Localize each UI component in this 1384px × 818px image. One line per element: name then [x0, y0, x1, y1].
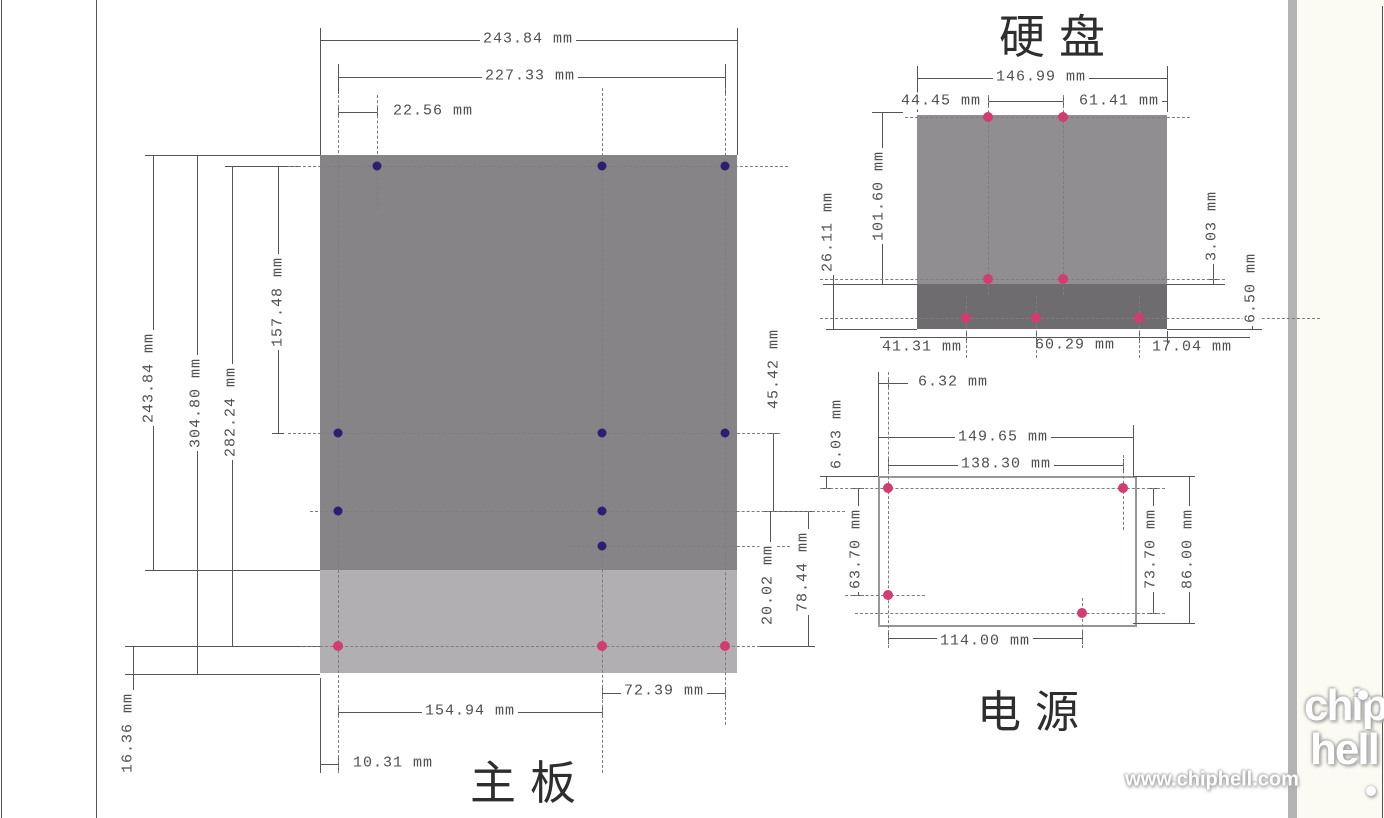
dimension-line [826, 329, 917, 330]
mounting-hole-dot [598, 542, 607, 551]
circuit-dot-icon [1358, 690, 1368, 700]
dim-label-psu-height: 86.00 mm [1180, 506, 1197, 592]
mounting-hole-dot [598, 162, 607, 171]
dim-label-psu-width-outer: 149.65 mm [955, 429, 1051, 446]
dimension-line [1167, 95, 1168, 107]
dim-label-mb-bottom-edge: 16.36 mm [120, 690, 137, 776]
centerline [1063, 95, 1064, 295]
dim-label-psu-right-span: 73.70 mm [1143, 506, 1160, 592]
dimension-line [147, 570, 159, 571]
dim-label-hdd-mid-offset: 3.03 mm [1204, 188, 1221, 264]
dim-label-psu-inset-x: 6.32 mm [915, 374, 991, 391]
dimension-line [737, 28, 738, 155]
centerline [377, 95, 378, 210]
dimension-line [320, 34, 321, 46]
dimension-line [191, 674, 203, 675]
mounting-hole-dot [720, 641, 730, 651]
dimension-line [826, 476, 827, 488]
dimension-line [1207, 284, 1219, 285]
dim-label-hdd-bottom-offset: 6.50 mm [1243, 250, 1260, 326]
dimension-line [338, 112, 377, 113]
chiphell-logo: chip hell [1296, 684, 1384, 814]
dimension-line [145, 155, 320, 156]
dimension-line [917, 72, 918, 84]
hdd-body [917, 115, 1167, 284]
dim-label-mb-offset-tl: 22.56 mm [390, 103, 476, 120]
mounting-hole-dot [961, 313, 971, 323]
centerline [888, 372, 889, 648]
dimension-line [802, 646, 814, 647]
dimension-line [876, 284, 888, 285]
mounting-hole-dot [334, 507, 343, 516]
mounting-hole-dot [334, 429, 343, 438]
mounting-hole-dot [598, 429, 607, 438]
hdd-title: 硬盘 [999, 1, 1119, 67]
dimension-line [133, 646, 134, 690]
centerline [1082, 598, 1083, 648]
centerline [725, 88, 726, 725]
dimension-line [338, 71, 339, 83]
mounting-hole-dot [983, 112, 993, 122]
dim-label-hdd-top-span: 44.45 mm [898, 93, 984, 110]
dim-label-mb-row1-row2: 157.48 mm [270, 254, 287, 350]
centerline [988, 95, 989, 295]
dimension-line [1167, 72, 1168, 84]
dim-label-mb-row3-row4: 20.02 mm [760, 542, 777, 628]
centerline [310, 511, 845, 512]
dim-label-mb-col1-col2: 154.94 mm [422, 703, 518, 720]
dimension-line [725, 71, 726, 83]
dimension-line [770, 511, 771, 546]
dim-label-mb-edge-col1: 10.31 mm [350, 755, 436, 772]
mounting-hole-dot [883, 590, 893, 600]
mounting-hole-dot [721, 162, 730, 171]
dimension-line [1133, 431, 1134, 443]
dimension-line [1, 0, 2, 818]
mounting-hole-dot [1031, 313, 1041, 323]
chiphell-logo-top: chip [1304, 686, 1384, 726]
dim-label-mb-width-holes: 227.33 mm [482, 68, 578, 85]
centerline [820, 488, 1165, 489]
mounting-hole-dot [721, 429, 730, 438]
chiphell-logo-bottom: hell [1310, 730, 1378, 770]
dimension-line [272, 433, 284, 434]
dim-label-hdd-bottom-left: 41.31 mm [879, 339, 965, 356]
centerline [288, 166, 788, 167]
dimension-line [226, 646, 238, 647]
dim-label-hdd-bottom-span: 60.29 mm [1032, 337, 1118, 354]
mounting-hole-dot [1058, 112, 1068, 122]
dimension-line [1246, 329, 1258, 330]
dimension-line [988, 101, 1063, 102]
dimension-line [878, 431, 879, 443]
centerline [300, 646, 760, 647]
motherboard-body [320, 155, 737, 570]
centerline [820, 279, 1225, 280]
dim-label-mb-height-holes: 282.24 mm [223, 364, 240, 460]
psu-title: 电源 [977, 676, 1093, 740]
dimension-line [320, 758, 321, 770]
dim-label-mb-row3-row5: 78.44 mm [795, 529, 812, 615]
dim-label-hdd-side-height: 26.11 mm [820, 189, 837, 275]
dim-label-mb-width-outer: 243.84 mm [480, 31, 576, 48]
mounting-hole-dot [333, 641, 343, 651]
mounting-hole-dot [597, 641, 607, 651]
watermark-url: www.chiphell.com [1125, 769, 1299, 792]
centerline [905, 117, 1190, 118]
mounting-hole-dot [373, 162, 382, 171]
dim-label-hdd-top-edge: 61.41 mm [1076, 93, 1162, 110]
dimension-line [125, 674, 320, 675]
dim-label-mb-col2-col3: 72.39 mm [621, 683, 707, 700]
circuit-dot-icon [1366, 786, 1376, 796]
dim-label-psu-inset-y: 6.03 mm [829, 396, 846, 472]
dimension-line [878, 377, 879, 389]
dimension-line [125, 646, 320, 647]
centerline [966, 296, 967, 358]
mounting-hole-dot [1077, 608, 1087, 618]
hdd-side-strip [917, 284, 1167, 329]
dimension-line [320, 764, 338, 765]
dimension-line [1183, 623, 1195, 624]
mounting-hole-dot [983, 274, 993, 284]
dimension-line [827, 329, 839, 330]
mounting-hole-dot [598, 507, 607, 516]
dim-label-hdd-length: 146.99 mm [993, 69, 1089, 86]
dim-label-mb-height-full: 304.80 mm [188, 355, 205, 451]
mounting-hole-dot [1058, 274, 1068, 284]
dim-label-psu-width-holes: 138.30 mm [958, 456, 1054, 473]
centerline [855, 613, 1165, 614]
dim-label-psu-left-span: 63.70 mm [848, 506, 865, 592]
dim-label-hdd-bottom-right: 17.04 mm [1149, 339, 1235, 356]
dimension-line [96, 0, 97, 818]
mounting-hole-dot [883, 483, 893, 493]
cad-drawing-page: 主板 硬盘 电源 243.84 mm 227.33 mm 22.56 mm 24… [0, 0, 1384, 818]
psu-outline [878, 476, 1137, 627]
centerline [288, 433, 780, 434]
dimension-line [878, 383, 908, 384]
dim-label-hdd-width: 101.60 mm [871, 148, 888, 244]
motherboard-lower-strip [320, 570, 737, 673]
mounting-hole-dot [1134, 313, 1144, 323]
dimension-line [773, 433, 774, 511]
dimension-line [320, 28, 321, 155]
mounting-hole-dot [1118, 483, 1128, 493]
dim-label-mb-row2-row3: 45.42 mm [766, 326, 783, 412]
dim-label-mb-height-main: 243.84 mm [141, 330, 158, 426]
dimension-line [737, 34, 738, 46]
dim-label-psu-bottom-span: 114.00 mm [937, 633, 1033, 650]
centerline [1139, 296, 1140, 358]
motherboard-title: 主板 [470, 747, 590, 813]
